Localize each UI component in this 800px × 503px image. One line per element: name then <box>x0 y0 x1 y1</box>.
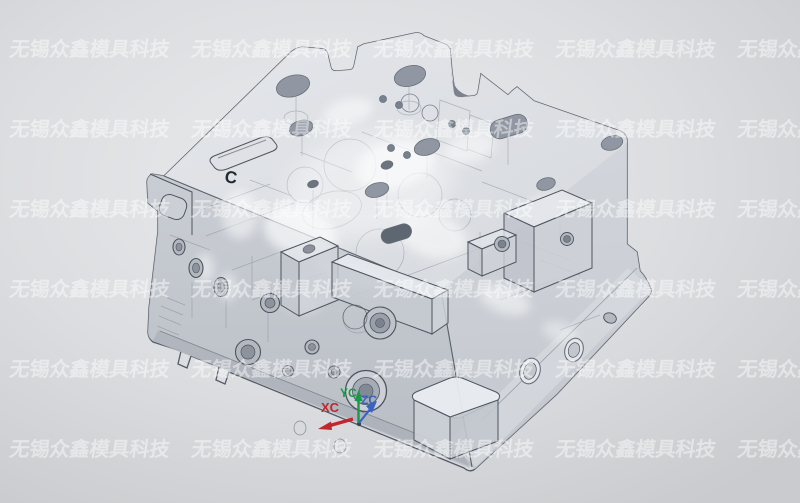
axis-x-label: XC <box>321 400 340 415</box>
viewport-canvas[interactable]: C XC YC ZC <box>0 0 800 503</box>
c-mark: C <box>224 167 239 188</box>
cad-viewport[interactable]: C XC YC ZC 无锡众鑫模具科技无锡众鑫模具科技无锡众鑫模具科技无锡众鑫模… <box>0 0 800 503</box>
axis-y-label: YC <box>340 386 357 400</box>
axis-z-label: ZC <box>361 393 377 407</box>
